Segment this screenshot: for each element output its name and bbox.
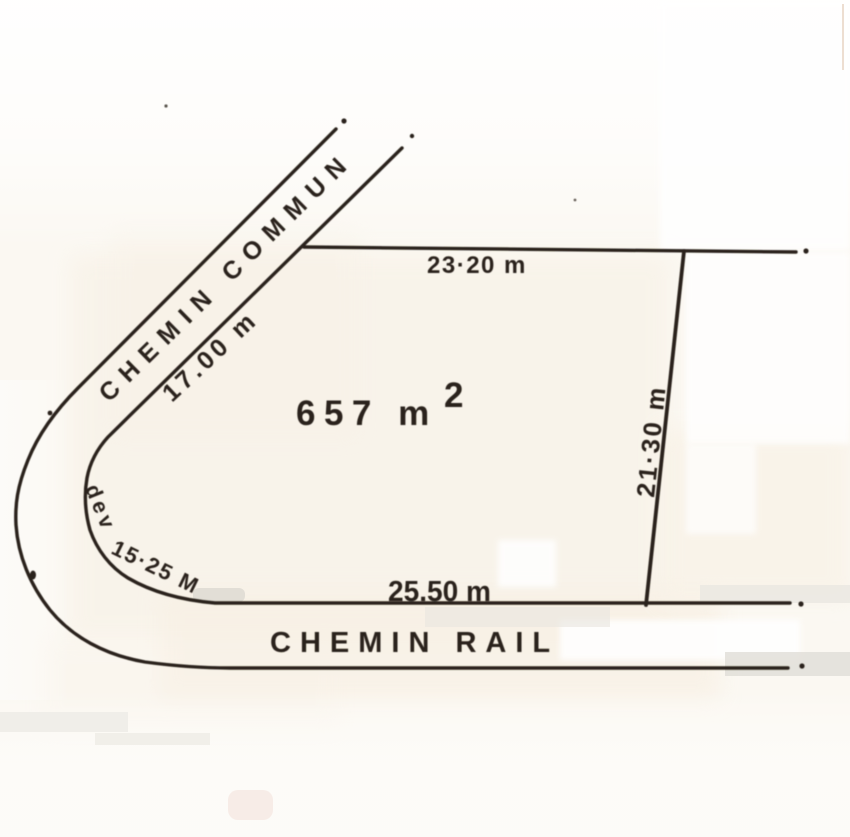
- svg-text:2: 2: [444, 376, 463, 415]
- svg-text:23·20 m: 23·20 m: [427, 252, 527, 279]
- svg-text:25.50 m: 25.50 m: [388, 576, 491, 608]
- svg-text:CHEMIN RAIL: CHEMIN RAIL: [270, 627, 559, 659]
- svg-text:657 m: 657 m: [296, 394, 438, 433]
